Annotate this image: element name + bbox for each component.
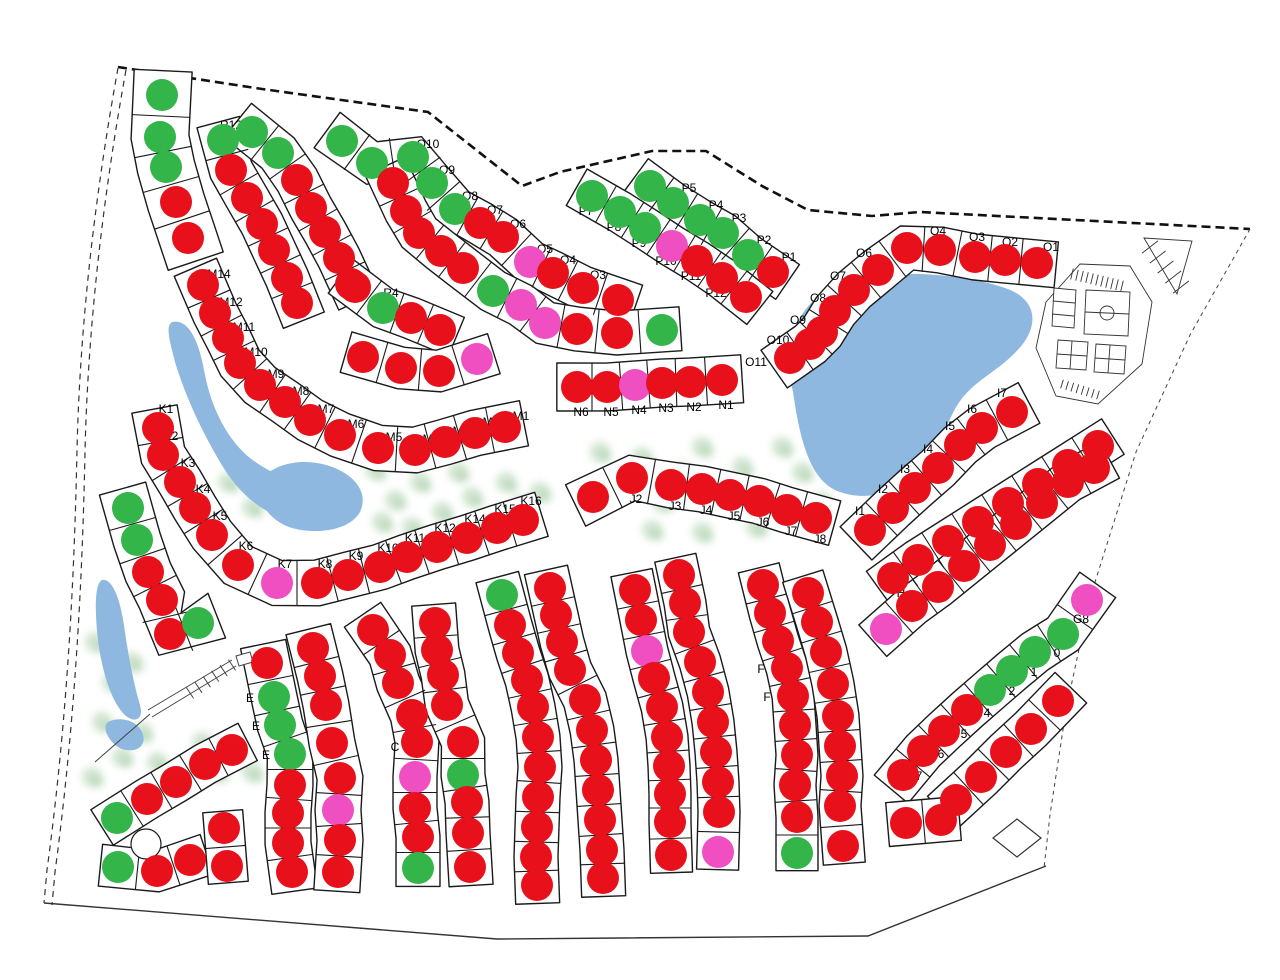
lot-dot[interactable] <box>236 116 268 148</box>
lot-dot[interactable] <box>959 241 991 273</box>
lot-dot[interactable] <box>706 364 738 396</box>
lot-dot[interactable] <box>1071 584 1103 616</box>
lot-dot[interactable] <box>522 781 554 813</box>
lot-dot[interactable] <box>395 302 427 334</box>
lot-dot[interactable] <box>172 222 204 254</box>
lot-dot[interactable] <box>489 411 521 443</box>
lot-dot[interactable] <box>396 699 428 731</box>
lot-dot[interactable] <box>646 691 678 723</box>
lot-dot[interactable] <box>507 504 539 536</box>
lot-dot[interactable] <box>326 125 358 157</box>
lot-dot[interactable] <box>654 806 686 838</box>
lot-dot[interactable] <box>673 616 705 648</box>
lot-dot[interactable] <box>989 244 1021 276</box>
lot-dot[interactable] <box>692 676 724 708</box>
lot-dot[interactable] <box>324 762 356 794</box>
dock-hatch <box>186 688 193 699</box>
lot-dot[interactable] <box>367 292 399 324</box>
lot-dot[interactable] <box>423 355 455 387</box>
lot-label: J6 <box>757 515 770 529</box>
lot-dot[interactable] <box>629 212 661 244</box>
tree-blob <box>122 756 134 768</box>
lot-dot[interactable] <box>416 167 448 199</box>
lot-dot[interactable] <box>1000 508 1032 540</box>
lot-dot[interactable] <box>264 709 296 741</box>
lot-dot[interactable] <box>182 607 214 639</box>
lot-dot[interactable] <box>258 681 290 713</box>
lot-dot[interactable] <box>274 769 306 801</box>
lot-dot[interactable] <box>382 667 414 699</box>
lot-label: J4 <box>700 503 713 517</box>
lot-dot[interactable] <box>391 541 423 573</box>
lot-dot[interactable] <box>189 748 221 780</box>
dock-line <box>148 660 232 710</box>
lot-dot[interactable] <box>587 862 619 894</box>
lot-dot[interactable] <box>207 124 239 156</box>
tree-blob <box>540 491 552 503</box>
lot-dot[interactable] <box>625 604 657 636</box>
lot-dot[interactable] <box>112 492 144 524</box>
lot-dot[interactable] <box>792 577 824 609</box>
lot-dot[interactable] <box>584 804 616 836</box>
lot-dot[interactable] <box>655 469 687 501</box>
lot-dot[interactable] <box>817 668 849 700</box>
lot-dot[interactable] <box>522 721 554 753</box>
lot-dot[interactable] <box>810 636 842 668</box>
lot-dot[interactable] <box>824 790 856 822</box>
lot-dot[interactable] <box>322 794 354 826</box>
lot-dot[interactable] <box>674 366 706 398</box>
tree-blob <box>652 529 664 541</box>
lot-dot[interactable] <box>757 256 789 288</box>
lot-dot[interactable] <box>324 419 356 451</box>
lot-dot[interactable] <box>582 774 614 806</box>
lot-dot[interactable] <box>179 492 211 524</box>
lot-dot[interactable] <box>654 778 686 810</box>
lot-dot[interactable] <box>347 341 379 373</box>
tree-blob <box>142 731 154 743</box>
lot-dot[interactable] <box>577 481 609 513</box>
lot-dot[interactable] <box>431 689 463 721</box>
lot-label: J2 <box>630 492 643 506</box>
tree-blob <box>395 499 407 511</box>
lot-dot[interactable] <box>454 851 486 883</box>
lot-dot[interactable] <box>461 343 493 375</box>
lot-dot[interactable] <box>534 572 566 604</box>
lot-dot[interactable] <box>657 187 689 219</box>
lot-dot[interactable] <box>707 217 739 249</box>
lot-dot[interactable] <box>402 821 434 853</box>
lot-dot[interactable] <box>377 167 409 199</box>
lot-dot[interactable] <box>150 151 182 183</box>
lot-dot[interactable] <box>554 654 586 686</box>
lot-dot[interactable] <box>891 232 923 264</box>
lot-dot[interactable] <box>160 186 192 218</box>
lot-dot[interactable] <box>730 281 762 313</box>
lot-dot[interactable] <box>700 736 732 768</box>
lot-dot[interactable] <box>399 434 431 466</box>
lot-dot[interactable] <box>602 284 634 316</box>
lot-dot[interactable] <box>374 639 406 671</box>
lot-dot[interactable] <box>781 739 813 771</box>
lot-dot[interactable] <box>511 664 543 696</box>
lot-dot[interactable] <box>646 367 678 399</box>
lot-dot[interactable] <box>781 801 813 833</box>
lot-dot[interactable] <box>1026 487 1058 519</box>
lot-dot[interactable] <box>1021 247 1053 279</box>
lot-dot[interactable] <box>215 154 247 186</box>
lot-dot[interactable] <box>261 567 293 599</box>
lot-dot[interactable] <box>569 684 601 716</box>
lot-dot[interactable] <box>669 587 701 619</box>
lot-dot[interactable] <box>452 817 484 849</box>
lot-dot[interactable] <box>996 396 1028 428</box>
lot-dot[interactable] <box>487 221 519 253</box>
lot-dot[interactable] <box>576 180 608 212</box>
lot-label: N4 <box>631 403 647 417</box>
lot-dot[interactable] <box>902 544 934 576</box>
lot-dot[interactable] <box>486 579 518 611</box>
lot-dot[interactable] <box>702 836 734 868</box>
tree-blob <box>420 481 432 493</box>
diamond-marker <box>993 819 1041 857</box>
tree-blob <box>472 496 484 508</box>
lot-dot[interactable] <box>922 571 954 603</box>
lot-dot[interactable] <box>576 714 608 746</box>
lot-dot[interactable] <box>890 807 922 839</box>
lot-dot[interactable] <box>655 839 687 871</box>
lot-dot[interactable] <box>421 531 453 563</box>
lot-dot[interactable] <box>147 439 179 471</box>
lot-dot[interactable] <box>631 635 663 667</box>
lot-dot[interactable] <box>703 796 735 828</box>
lot-dot[interactable] <box>781 837 813 869</box>
lot-label: E <box>246 691 254 705</box>
lot-label: 5 <box>961 727 968 741</box>
lot-dot[interactable] <box>714 479 746 511</box>
lot-dot[interactable] <box>304 660 336 692</box>
lot-dot[interactable] <box>216 734 248 766</box>
lot-label: C <box>391 740 400 754</box>
lot-dot[interactable] <box>459 417 491 449</box>
lot-dot[interactable] <box>447 759 479 791</box>
lot-dot[interactable] <box>779 709 811 741</box>
lot-dot[interactable] <box>251 647 283 679</box>
lot-dot[interactable] <box>827 830 859 862</box>
cul-de-sac <box>131 829 161 859</box>
lot-dot[interactable] <box>924 234 956 266</box>
lot-dot[interactable] <box>427 659 459 691</box>
tree-blob <box>92 776 104 788</box>
lot-dot[interactable] <box>826 760 858 792</box>
lot-dot[interactable] <box>332 559 364 591</box>
lot-dot[interactable] <box>294 404 326 436</box>
lot-label: E <box>262 748 270 762</box>
lot-dot[interactable] <box>754 597 786 629</box>
lot-dot[interactable] <box>101 802 133 834</box>
lot-dot[interactable] <box>146 79 178 111</box>
lot-label: F <box>763 690 770 704</box>
lot-dot[interactable] <box>324 824 356 856</box>
lot-dot[interactable] <box>546 626 578 658</box>
lot-label: O11 <box>745 355 767 369</box>
lot-dot[interactable] <box>521 869 553 901</box>
lot-dot[interactable] <box>777 680 809 712</box>
dock-line <box>152 666 236 717</box>
lot-label: F <box>757 662 764 676</box>
tree-blob <box>252 771 264 783</box>
lot-dot[interactable] <box>451 786 483 818</box>
lot-dot[interactable] <box>800 502 832 534</box>
lot-dot[interactable] <box>747 569 779 601</box>
site-map-svg: R12R4M14M12M11M10M9M8M7M6M5M4M3M2M1Q10Q9… <box>0 0 1280 980</box>
lot-dot[interactable] <box>281 164 313 196</box>
dock-hatch <box>220 665 227 676</box>
lot-dot[interactable] <box>339 271 371 303</box>
lot-dot[interactable] <box>646 314 678 346</box>
tree-blob <box>506 481 518 493</box>
lot-dot[interactable] <box>948 550 980 582</box>
lot-dot[interactable] <box>208 812 240 844</box>
lot-label: J7 <box>785 524 798 538</box>
lot-dot[interactable] <box>887 759 919 791</box>
lot-dot[interactable] <box>651 721 683 753</box>
lot-dot[interactable] <box>385 352 417 384</box>
lot-dot[interactable] <box>174 844 206 876</box>
lot-dot[interactable] <box>262 137 294 169</box>
lot-dot[interactable] <box>529 307 561 339</box>
lot-dot[interactable] <box>870 613 902 645</box>
lot-dot[interactable] <box>322 856 354 888</box>
lot-label: N6 <box>573 405 589 419</box>
lot-label: J3 <box>669 499 682 513</box>
lot-dot[interactable] <box>424 314 456 346</box>
lot-dot[interactable] <box>1078 452 1110 484</box>
lot-label: E <box>252 719 260 733</box>
lot-dot[interactable] <box>771 494 803 526</box>
lot-dot[interactable] <box>990 736 1022 768</box>
lot-label: J8 <box>814 532 827 546</box>
lot-label: 4 <box>984 706 991 720</box>
lot-dot[interactable] <box>697 706 729 738</box>
lot-dot[interactable] <box>297 632 329 664</box>
parking-triangle <box>1142 238 1192 294</box>
lot-dot[interactable] <box>402 852 434 884</box>
lot-dot[interactable] <box>258 234 290 266</box>
lot-dot[interactable] <box>429 426 461 458</box>
lake <box>96 580 141 720</box>
lot-dot[interactable] <box>281 287 313 319</box>
lot-dot[interactable] <box>272 827 304 859</box>
lot-dot[interactable] <box>520 841 552 873</box>
lot-dot[interactable] <box>896 590 928 622</box>
lot-dot[interactable] <box>141 855 173 887</box>
lot-dot[interactable] <box>580 744 612 776</box>
lot-dot[interactable] <box>537 257 569 289</box>
lot-dot[interactable] <box>1042 685 1074 717</box>
lot-dot[interactable] <box>144 121 176 153</box>
lot-dot[interactable] <box>524 751 556 783</box>
tree-blob <box>702 446 714 458</box>
tree-blob <box>382 521 394 533</box>
lot-dot[interactable] <box>619 574 651 606</box>
lot-label: N2 <box>686 400 702 414</box>
tree-blob <box>782 446 794 458</box>
tree-blob <box>802 471 814 483</box>
lot-dot[interactable] <box>1015 713 1047 745</box>
lot-dot[interactable] <box>601 317 633 349</box>
lot-dot[interactable] <box>638 662 670 694</box>
amenity-complex-shape <box>1052 288 1076 328</box>
tree-blob <box>458 471 470 483</box>
tree-blob <box>600 451 612 463</box>
lot-dot[interactable] <box>653 750 685 782</box>
lot-dot[interactable] <box>146 584 178 616</box>
lot-dot[interactable] <box>663 559 695 591</box>
lot-dot[interactable] <box>561 371 593 403</box>
lot-dot[interactable] <box>121 524 153 556</box>
lot-dot[interactable] <box>310 689 342 721</box>
lot-dot[interactable] <box>684 646 716 678</box>
lot-dot[interactable] <box>974 529 1006 561</box>
lot-dot[interactable] <box>102 851 134 883</box>
tree-blob <box>132 661 144 673</box>
lot-dot[interactable] <box>686 473 718 505</box>
lot-dot[interactable] <box>1047 618 1079 650</box>
lot-dot[interactable] <box>272 797 304 829</box>
lot-dot[interactable] <box>362 432 394 464</box>
lot-label: N5 <box>603 405 619 419</box>
lot-dot[interactable] <box>276 856 308 888</box>
lot-dot[interactable] <box>399 761 431 793</box>
lot-dot[interactable] <box>211 850 243 882</box>
plat-map: R12R4M14M12M11M10M9M8M7M6M5M4M3M2M1Q10Q9… <box>0 0 1280 980</box>
lot-dot[interactable] <box>801 606 833 638</box>
lot-dot[interactable] <box>401 726 433 758</box>
lot-dot[interactable] <box>399 792 431 824</box>
lot-dot[interactable] <box>779 769 811 801</box>
lot-dot[interactable] <box>586 834 618 866</box>
lot-dot[interactable] <box>616 462 648 494</box>
lot-dot[interactable] <box>274 738 306 770</box>
lot-dot[interactable] <box>397 141 429 173</box>
lot-dot[interactable] <box>591 371 623 403</box>
lot-label: J5 <box>728 509 741 523</box>
lot-dot[interactable] <box>774 342 806 374</box>
lot-label: N3 <box>658 401 674 415</box>
lot-dot[interactable] <box>187 269 219 301</box>
lot-dot[interactable] <box>540 599 572 631</box>
lot-dot[interactable] <box>132 556 164 588</box>
lot-dot[interactable] <box>494 609 526 641</box>
lot-dot[interactable] <box>966 412 998 444</box>
lot-dot[interactable] <box>160 766 192 798</box>
lot-dot[interactable] <box>561 313 593 345</box>
lot-dot[interactable] <box>521 811 553 843</box>
lot-dot[interactable] <box>567 272 599 304</box>
lake <box>259 462 363 531</box>
lot-dot[interactable] <box>702 766 734 798</box>
lot-dot[interactable] <box>447 252 479 284</box>
lot-dot[interactable] <box>451 522 483 554</box>
lot-label: O9 <box>790 313 806 327</box>
lot-dot[interactable] <box>196 519 228 551</box>
lot-dot[interactable] <box>447 726 479 758</box>
lot-dot[interactable] <box>131 783 163 815</box>
lot-dot[interactable] <box>743 485 775 517</box>
lot-dot[interactable] <box>822 700 854 732</box>
lot-dot[interactable] <box>771 652 803 684</box>
tree-blob <box>702 531 714 543</box>
lot-dot[interactable] <box>477 275 509 307</box>
lot-dot[interactable] <box>824 730 856 762</box>
lot-dot[interactable] <box>301 567 333 599</box>
lot-dot[interactable] <box>965 761 997 793</box>
lot-dot[interactable] <box>222 549 254 581</box>
lot-label: N1 <box>718 398 734 412</box>
lot-dot[interactable] <box>517 691 549 723</box>
lot-dot[interactable] <box>154 618 186 650</box>
lot-dot[interactable] <box>925 804 957 836</box>
lot-dot[interactable] <box>316 727 348 759</box>
lot-dot[interactable] <box>142 412 174 444</box>
